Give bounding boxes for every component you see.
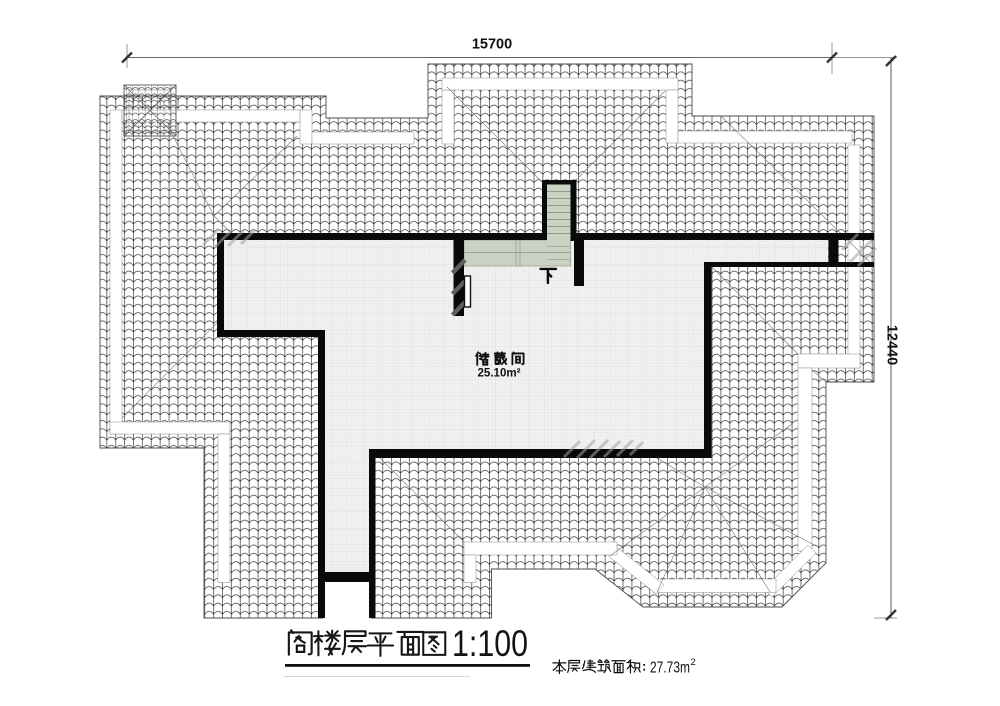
svg-text:25.10m²: 25.10m² — [478, 366, 521, 380]
svg-text::: : — [642, 659, 646, 674]
svg-text:27.73m: 27.73m — [650, 660, 690, 677]
svg-text:15700: 15700 — [472, 37, 512, 53]
svg-text:12440: 12440 — [884, 325, 900, 365]
svg-text:1:100: 1:100 — [452, 623, 528, 664]
svg-text:2: 2 — [691, 657, 696, 668]
